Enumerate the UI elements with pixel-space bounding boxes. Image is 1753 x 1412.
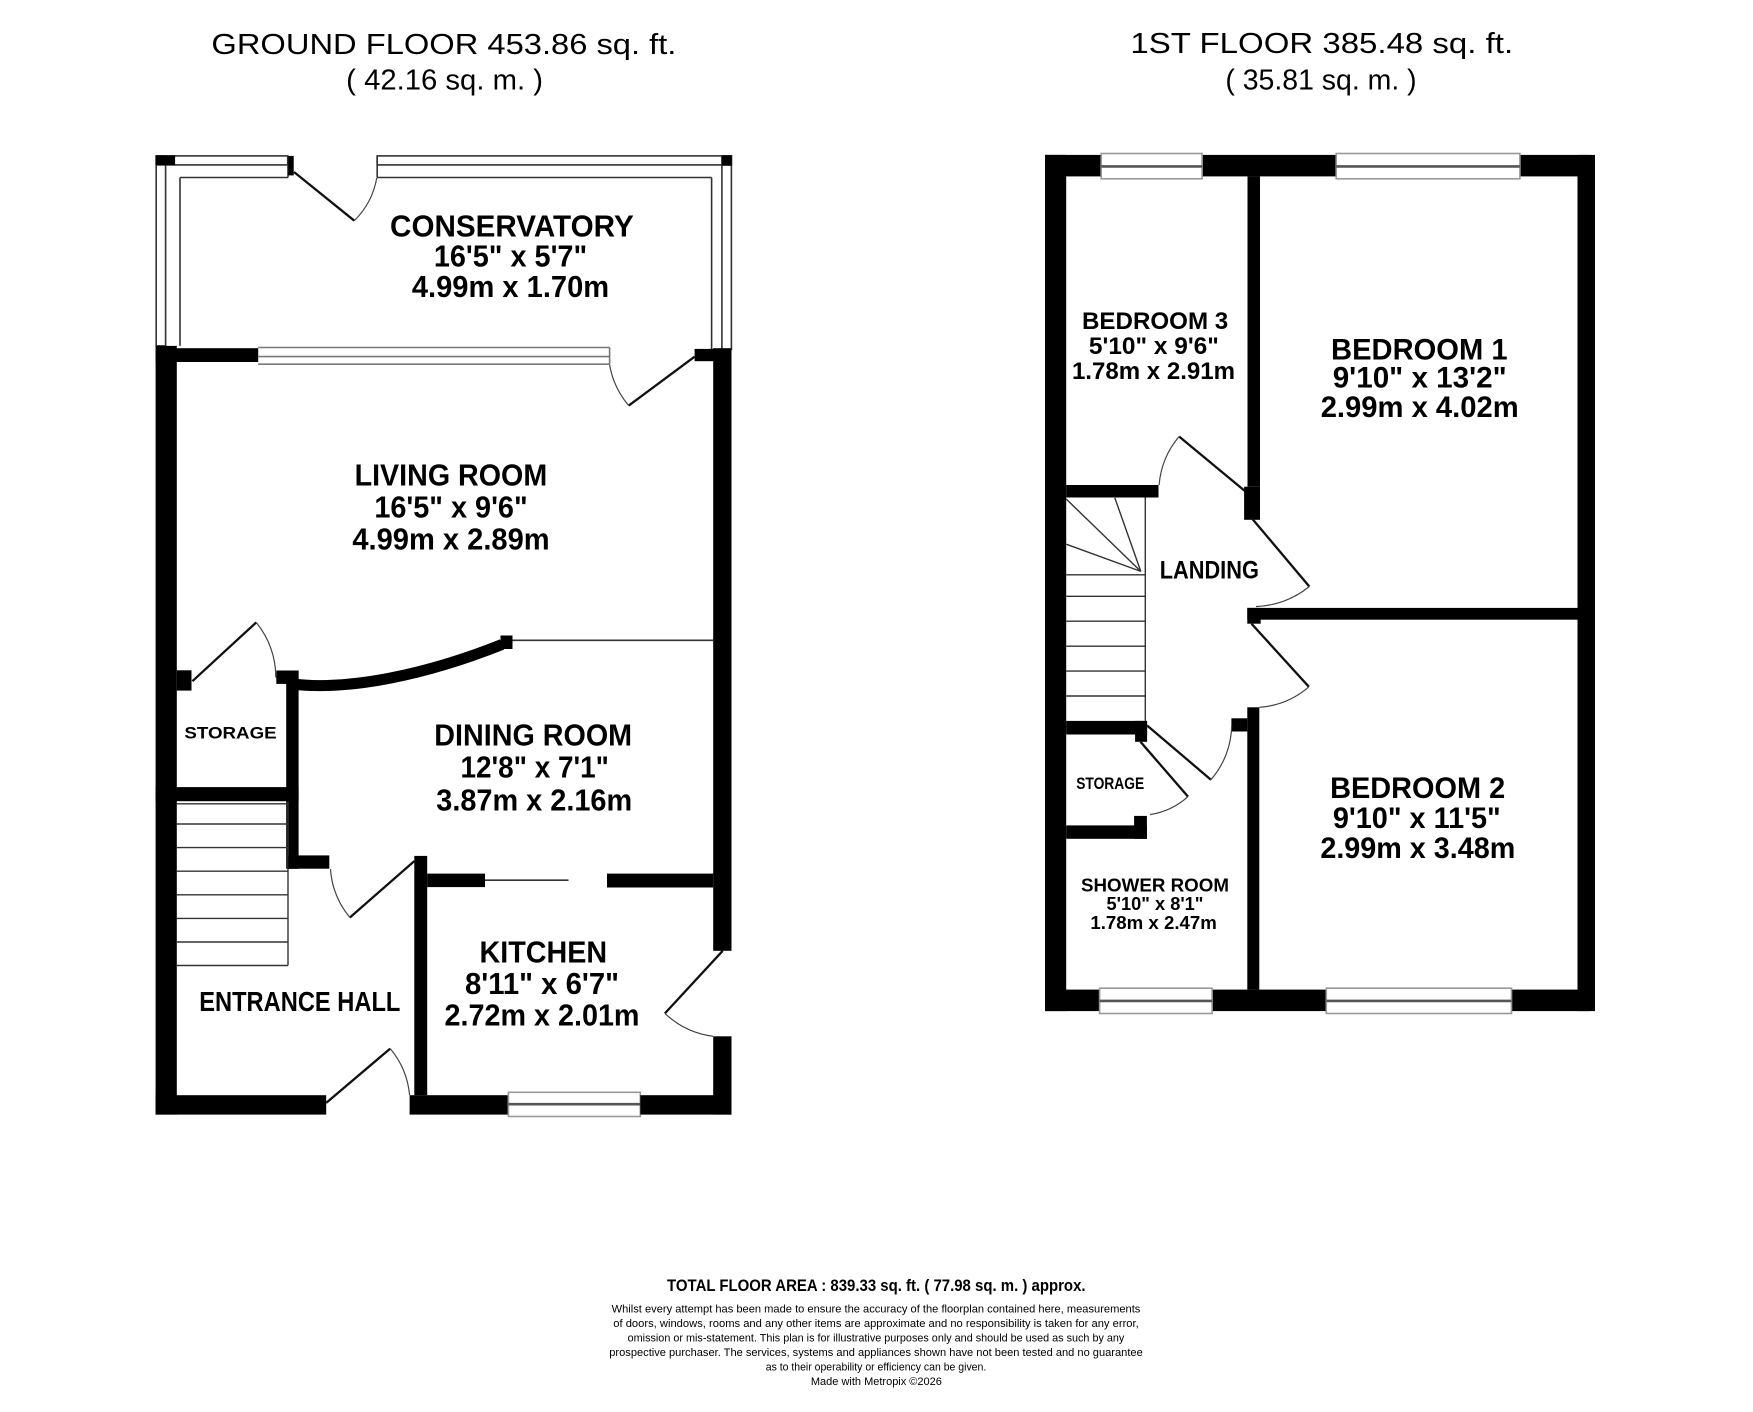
svg-text:ENTRANCE HALL: ENTRANCE HALL [199,986,400,1017]
svg-text:as to their operability or eff: as to their operability or efficiency ca… [766,1362,987,1374]
svg-text:Whilst every attempt has been: Whilst every attempt has been made to en… [612,1304,1141,1316]
svg-text:prospective purchaser. The ser: prospective purchaser. The services, sys… [609,1347,1143,1359]
svg-text:TOTAL FLOOR AREA : 839.33 sq.: TOTAL FLOOR AREA : 839.33 sq. ft. ( 77.9… [667,1276,1086,1295]
svg-text:3.87m x 2.16m: 3.87m x 2.16m [436,783,632,818]
svg-text:STORAGE: STORAGE [1076,774,1144,793]
svg-text:9'10" x 13'2": 9'10" x 13'2" [1333,362,1507,395]
svg-text:12'8" x 7'1": 12'8" x 7'1" [461,750,609,785]
svg-text:Made with Metropix ©2026: Made with Metropix ©2026 [811,1376,942,1388]
svg-text:KITCHEN: KITCHEN [480,935,608,970]
svg-text:STORAGE: STORAGE [184,725,276,743]
svg-text:omission or mis-statement. Thi: omission or mis-statement. This plan is … [628,1333,1125,1345]
svg-text:( 35.81 sq. m. ): ( 35.81 sq. m. ) [1225,65,1416,97]
svg-text:4.99m x 1.70m: 4.99m x 1.70m [412,269,609,304]
svg-text:2.99m x 4.02m: 2.99m x 4.02m [1321,391,1519,424]
svg-text:9'10" x 11'5": 9'10" x 11'5" [1333,802,1501,835]
svg-text:1.78m x 2.91m: 1.78m x 2.91m [1072,358,1235,385]
svg-text:2.99m x 3.48m: 2.99m x 3.48m [1320,832,1515,865]
svg-text:LANDING: LANDING [1160,557,1259,585]
svg-text:GROUND FLOOR 453.86 sq. ft.: GROUND FLOOR 453.86 sq. ft. [211,29,676,61]
svg-text:1.78m x 2.47m: 1.78m x 2.47m [1090,912,1217,933]
svg-text:4.99m x 2.89m: 4.99m x 2.89m [352,522,549,557]
svg-text:of doors, windows, rooms and a: of doors, windows, rooms and any other i… [613,1318,1139,1330]
svg-text:( 42.16 sq. m. ): ( 42.16 sq. m. ) [346,65,543,97]
svg-text:2.72m x 2.01m: 2.72m x 2.01m [445,998,640,1033]
svg-text:5'10" x 8'1": 5'10" x 8'1" [1107,893,1204,914]
svg-text:BEDROOM 3: BEDROOM 3 [1082,308,1228,335]
svg-text:DINING ROOM: DINING ROOM [434,718,632,753]
svg-text:5'10" x 9'6": 5'10" x 9'6" [1089,333,1219,360]
svg-text:8'11" x 6'7": 8'11" x 6'7" [465,966,619,1001]
svg-text:LIVING ROOM: LIVING ROOM [355,458,548,493]
svg-text:BEDROOM 2: BEDROOM 2 [1330,772,1505,805]
svg-text:16'5" x 9'6": 16'5" x 9'6" [374,490,527,525]
svg-text:1ST FLOOR 385.48 sq. ft.: 1ST FLOOR 385.48 sq. ft. [1130,28,1513,60]
